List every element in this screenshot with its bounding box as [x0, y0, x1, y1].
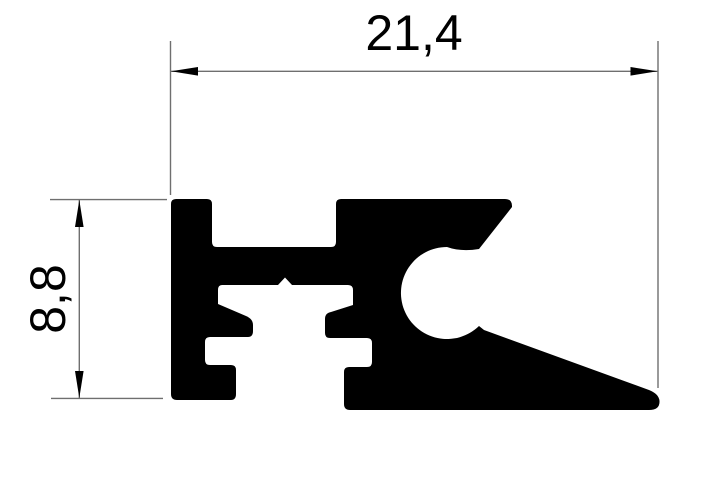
width-arrow-left-icon [171, 67, 198, 76]
drawing-canvas: 21,4 8,8 [0, 0, 717, 489]
width-arrow-right-icon [631, 67, 658, 76]
height-arrow-bottom-icon [75, 371, 84, 398]
height-arrow-top-icon [75, 200, 84, 227]
width-dimension-label: 21,4 [365, 5, 462, 61]
profile-group [171, 199, 660, 410]
technical-drawing: 21,4 8,8 [0, 0, 717, 489]
extrusion-profile-silhouette [171, 199, 660, 410]
height-dimension-label: 8,8 [20, 264, 76, 334]
